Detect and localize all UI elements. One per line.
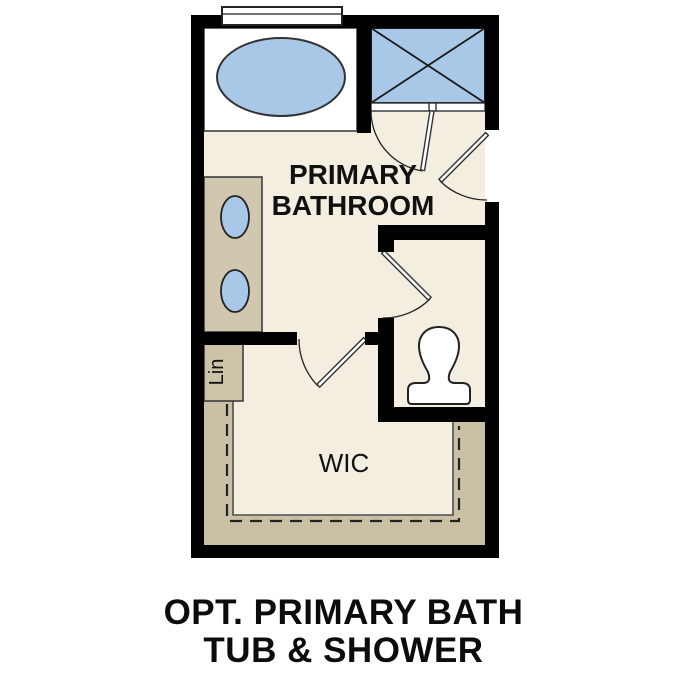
wc-wall-left-stub [378, 240, 394, 252]
plan-caption-line2: TUB & SHOWER [0, 632, 687, 670]
sink-top [221, 196, 249, 238]
double-sink-vanity [204, 177, 262, 332]
exterior-wall-left [191, 15, 204, 558]
vanity-wic-wall [191, 332, 297, 345]
linen-label: Lin [206, 359, 228, 386]
exterior-wall-right-lower [485, 202, 499, 558]
exterior-wall-right-upper [485, 15, 499, 130]
shower-threshold [371, 103, 485, 111]
wic-label: WIC [319, 448, 370, 478]
wic-shelf-right [453, 422, 485, 545]
bathtub [217, 38, 345, 116]
floor-plan-page: PRIMARY BATHROOM WIC Lin OPT. PRIMARY BA… [0, 0, 687, 687]
wic-shelf-bottom [204, 515, 485, 545]
wc-wall-bottom [378, 407, 499, 422]
plan-caption-line1: OPT. PRIMARY BATH [0, 594, 687, 632]
sink-bottom [221, 270, 249, 312]
plan-caption: OPT. PRIMARY BATH TUB & SHOWER [0, 594, 687, 670]
exterior-wall-bottom [191, 545, 499, 558]
wc-wall-top [378, 225, 499, 240]
wic-door-wall-stub [365, 332, 394, 345]
tub-shower-divider-wall [357, 15, 371, 133]
room-label-line2: BATHROOM [272, 190, 435, 221]
floor-plan-drawing: PRIMARY BATHROOM WIC Lin [0, 0, 687, 687]
window [222, 7, 342, 25]
window-frame [222, 7, 342, 25]
room-label-line1: PRIMARY [289, 159, 417, 190]
